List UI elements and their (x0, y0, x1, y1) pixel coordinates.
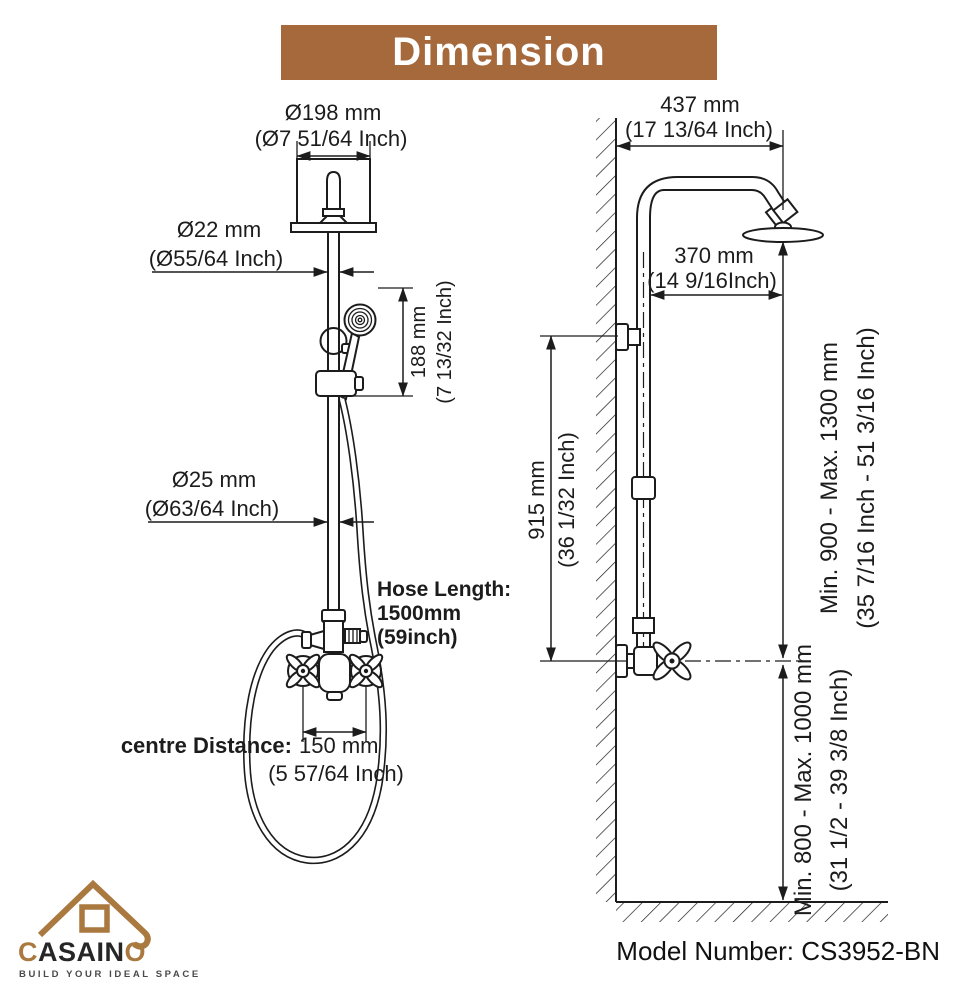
shower-hose (247, 399, 384, 860)
brand-letter-o: O (125, 937, 147, 967)
faucet-bottom-cap (327, 692, 342, 700)
dim-pipe22-mm: Ø22 mm (177, 217, 261, 242)
dim-370-inch: (14 9/16Inch) (647, 268, 777, 293)
wall-bracket-flange (616, 324, 628, 350)
model-number: Model Number: CS3952-BN (520, 936, 940, 967)
valve-body-side (634, 647, 657, 675)
slider-knob (355, 377, 363, 390)
hose-port-cap (302, 632, 311, 648)
dim-head-diameter-inch: (Ø7 51/64 Inch) (255, 126, 408, 151)
dim-800-1000-mm: Min. 800 - Max. 1000 mm (790, 644, 817, 916)
dim-370-mm: 370 mm (674, 243, 753, 268)
hose-length-mm: 1500mm (377, 602, 461, 625)
brand-letters-mid: ASAIN (38, 937, 125, 967)
diverter-body (324, 621, 343, 652)
brand-logo: CASAINO BUILD YOUR IDEAL SPACE (18, 880, 208, 985)
dim-pipe22-inch: (Ø55/64 Inch) (149, 246, 284, 271)
dim-437-inch: (17 13/64 Inch) (625, 117, 773, 142)
side-view-diagram: 437 mm (17 13/64 Inch) 370 mm (14 9/16In… (524, 92, 888, 922)
dim-pipe25-mm: Ø25 mm (172, 467, 256, 492)
dim-188-inch: (7 13/32 Inch) (434, 280, 456, 403)
dim-900-1300-mm: Min. 900 - Max. 1300 mm (816, 342, 843, 614)
dim-900-1300-inch: (35 7/16 Inch - 51 3/16 Inch) (853, 327, 880, 629)
dim-915-inch: (36 1/32 Inch) (554, 432, 579, 568)
model-number-label: Model Number: (616, 936, 794, 966)
model-number-value: CS3952-BN (801, 936, 940, 966)
valve-top-nut (633, 618, 654, 633)
floor-hatching (616, 902, 888, 922)
dim-pipe25-inch: (Ø63/64 Inch) (145, 496, 280, 521)
brand-letter-c: C (18, 937, 38, 967)
page: Dimension (0, 0, 962, 990)
riser-connector (632, 477, 655, 499)
faucet-valve-body (319, 654, 350, 692)
dim-437-mm: 437 mm (660, 92, 739, 117)
rain-head-side (743, 228, 823, 242)
brand-tagline: BUILD YOUR IDEAL SPACE (19, 969, 201, 980)
centre-distance-inch: (5 57/64 Inch) (268, 761, 404, 786)
dimension-drawing: Ø198 mm (Ø7 51/64 Inch) Ø22 mm (Ø55/64 I… (0, 0, 962, 990)
slider-bracket (316, 371, 356, 396)
dim-915-mm: 915 mm (524, 460, 549, 539)
centre-distance-mm: 150 mm (299, 733, 378, 758)
hose-length-inch: (59inch) (377, 626, 458, 649)
brand-name: CASAINO (18, 937, 146, 968)
hose-length-label: Hose Length: (377, 578, 511, 601)
dim-head-diameter-mm: Ø198 mm (285, 100, 382, 125)
head-finial-rod (327, 172, 340, 209)
wall-bracket-clamp (628, 329, 640, 345)
front-view-diagram: Ø198 mm (Ø7 51/64 Inch) Ø22 mm (Ø55/64 I… (121, 100, 511, 860)
dim-188-mm: 188 mm (408, 306, 430, 378)
dim-800-1000-inch: (31 1/2 - 39 3/8 Inch) (826, 669, 853, 892)
centre-distance-label: centre Distance: (121, 733, 292, 758)
hose-connector-cap (360, 631, 367, 642)
wall-hatching (596, 118, 616, 902)
rain-head-plate (291, 223, 376, 232)
hose-port-left (310, 631, 324, 649)
head-finial-collar (323, 209, 344, 216)
